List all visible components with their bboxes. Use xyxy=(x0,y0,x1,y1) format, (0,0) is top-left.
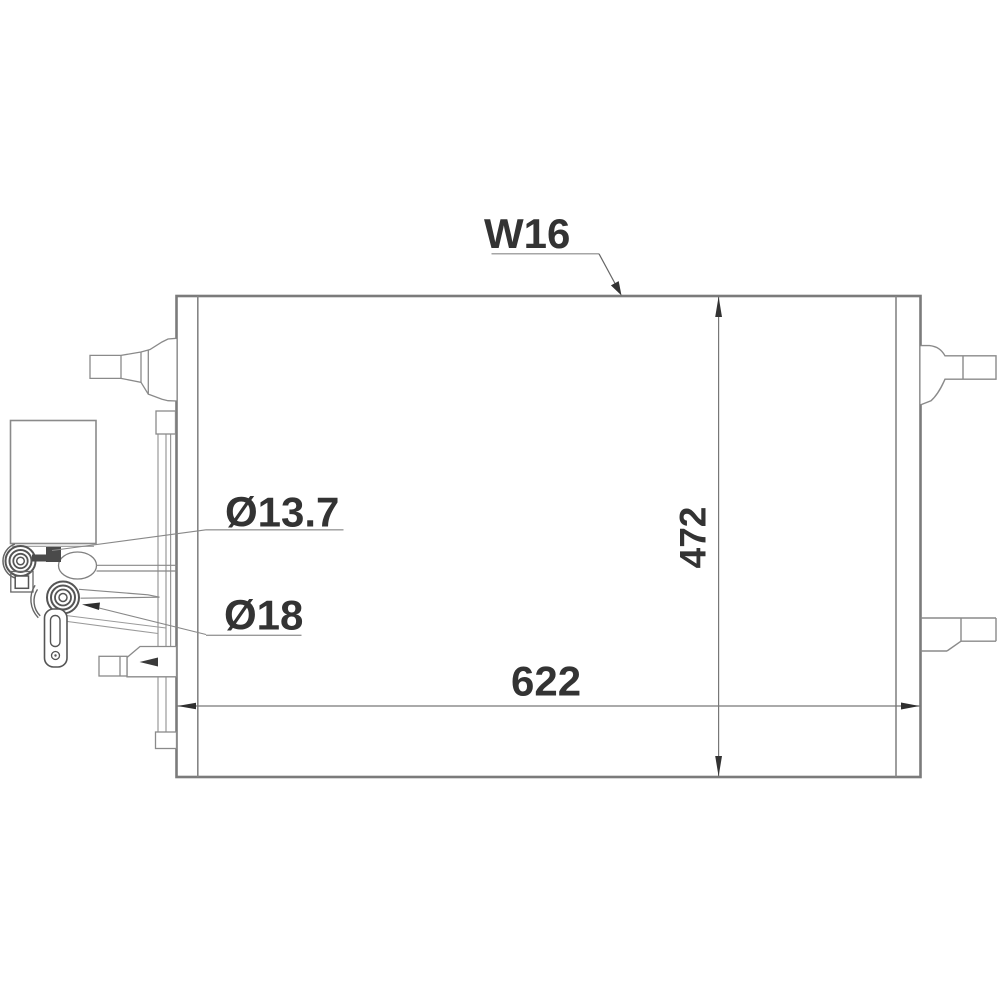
svg-text:Ø13.7: Ø13.7 xyxy=(225,489,339,536)
svg-text:Ø18: Ø18 xyxy=(224,592,303,639)
svg-text:622: 622 xyxy=(511,658,581,705)
svg-text:472: 472 xyxy=(673,507,714,569)
svg-text:W16: W16 xyxy=(484,210,570,257)
